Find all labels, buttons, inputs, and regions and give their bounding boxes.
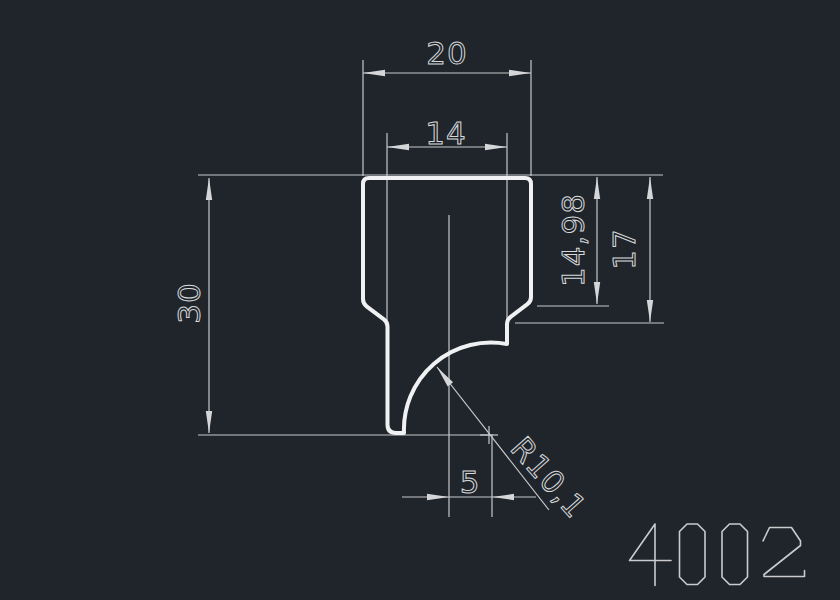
dim-label-14-98: 14,98	[555, 193, 591, 287]
arrowhead-20-right	[509, 70, 531, 76]
glyph-4	[630, 524, 672, 586]
arrowhead-14-left	[387, 144, 409, 150]
dimension-labels: 20 14 30 14,98 17 5 R10,1	[171, 35, 642, 525]
dim-label-14: 14	[425, 115, 466, 151]
arrowhead-5-right	[492, 494, 514, 500]
arrowhead-30-top	[206, 178, 212, 200]
cad-drawing-canvas: 4002	[0, 0, 840, 600]
arrowhead-17-top	[647, 177, 653, 199]
cad-drawing: 4002	[0, 0, 840, 600]
dim-label-5: 5	[460, 464, 481, 500]
dim-label-30: 30	[171, 282, 207, 323]
dim-label-17: 17	[606, 228, 642, 269]
profile-outline	[363, 178, 531, 433]
glyph-2	[763, 528, 805, 577]
arrowhead-14-98-bottom	[594, 282, 600, 304]
dim-label-radius: R10,1	[504, 430, 594, 525]
arrowhead-5-left	[427, 494, 449, 500]
part-number-glyphs: 4002	[630, 524, 805, 588]
glyph-0	[722, 524, 748, 585]
dim-label-20: 20	[426, 35, 467, 71]
arrowhead-14-98-top	[594, 177, 600, 199]
arrowhead-17-bottom	[647, 300, 653, 322]
arrowhead-30-bottom	[206, 411, 212, 433]
glyph-0	[680, 524, 706, 585]
arrowhead-radius	[437, 367, 453, 387]
arrowhead-14-right	[485, 144, 507, 150]
arrowhead-20-left	[363, 70, 385, 76]
